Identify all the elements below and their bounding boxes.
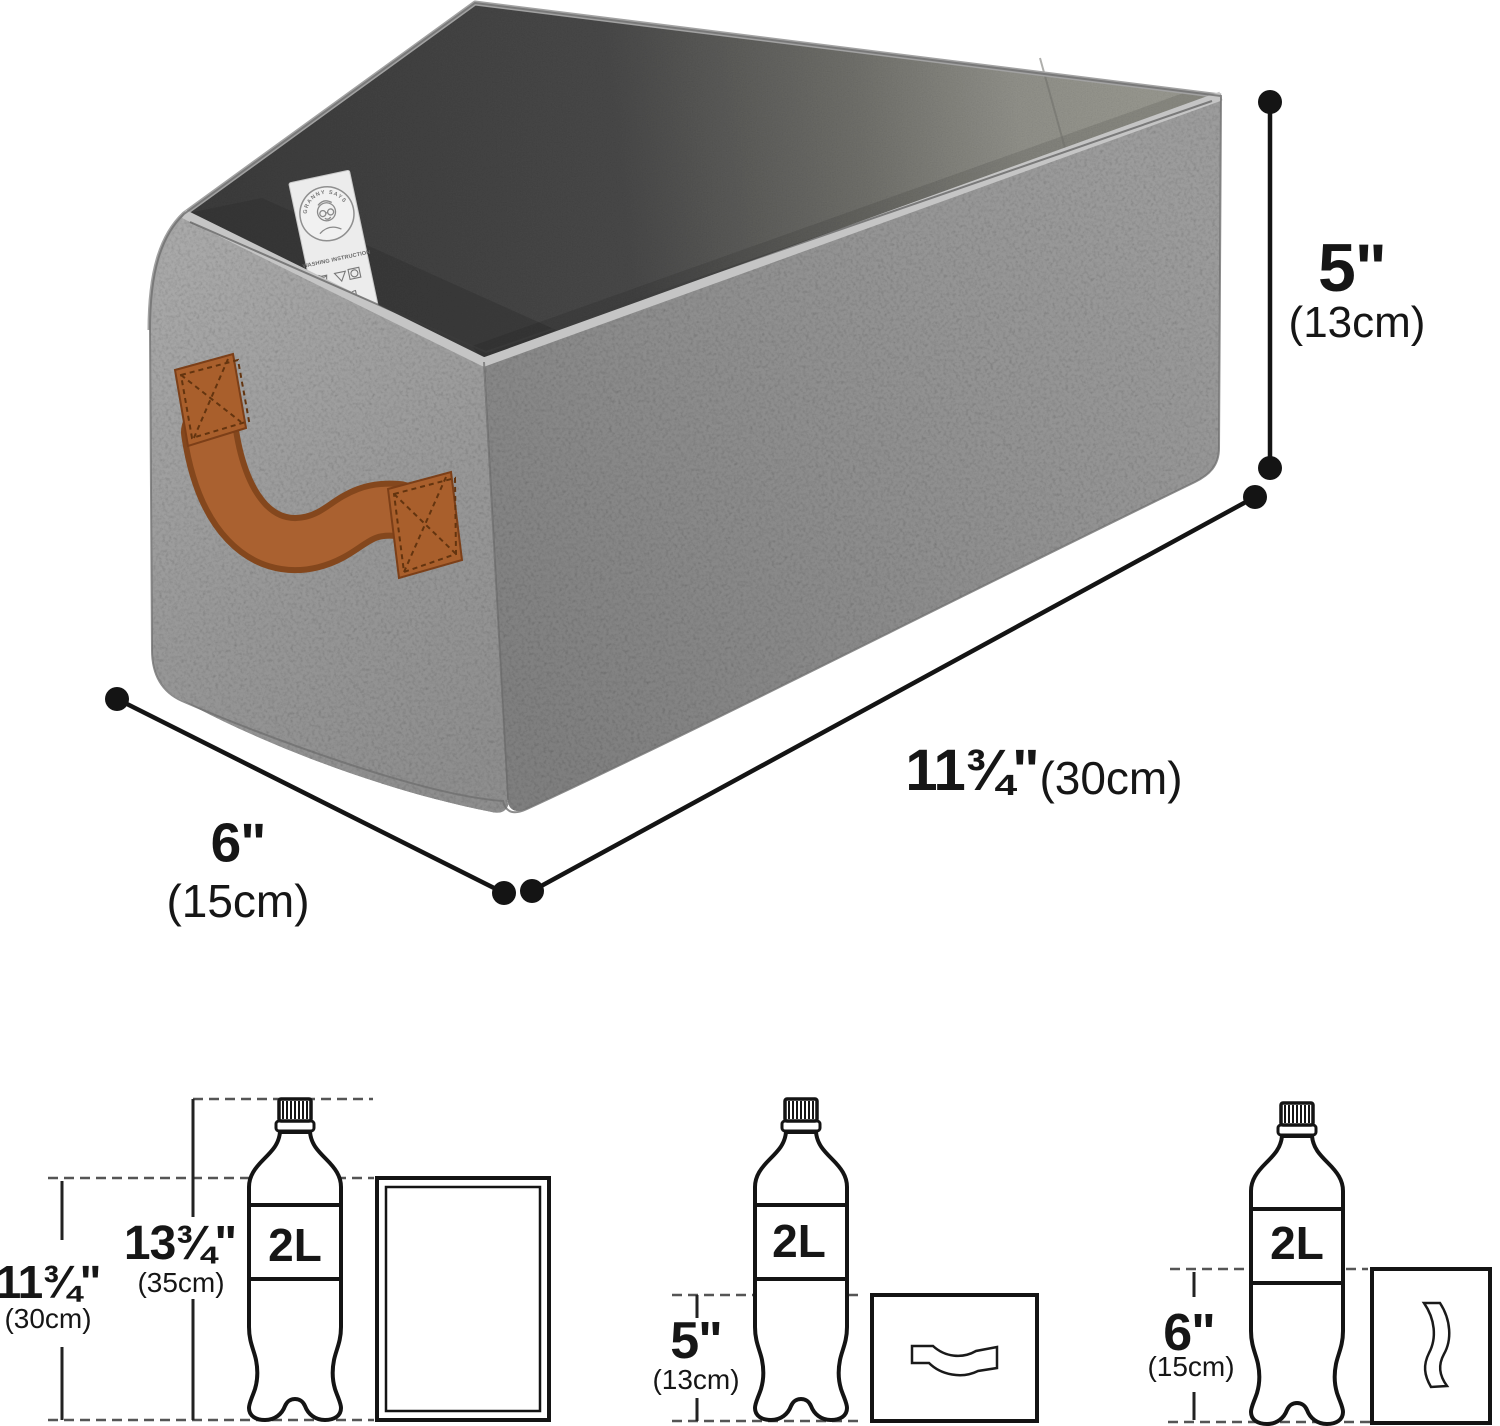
folded-panel-height-cm: (30cm) xyxy=(4,1305,91,1333)
bottle-height-inches: 13¾" xyxy=(124,1220,236,1268)
bottle-volume-label: 2L xyxy=(772,1218,826,1264)
folded-flat-height-inches: 5" xyxy=(670,1315,722,1367)
product-dimension-image: GRANNY SAYS WASHING INSTRUCTION xyxy=(0,0,1500,1426)
folded-flat-height-cm: (13cm) xyxy=(652,1366,739,1394)
folded-panel xyxy=(377,1178,549,1420)
bottle-volume-label: 2L xyxy=(268,1222,322,1268)
width-dimension-inches: 6" xyxy=(211,816,266,871)
width-dimension-cm: (15cm) xyxy=(166,878,309,924)
length-dimension-inches: 11¾" xyxy=(905,742,1038,800)
height-dimension-cm: (13cm) xyxy=(1289,301,1426,345)
height-dimension-inches: 5" xyxy=(1318,234,1386,302)
folded-panel-height-inches: 11¾" xyxy=(0,1259,100,1305)
diagram-canvas: GRANNY SAYS WASHING INSTRUCTION xyxy=(0,0,1500,1426)
folded-side-height-cm: (15cm) xyxy=(1147,1353,1234,1381)
storage-bin-illustration: GRANNY SAYS WASHING INSTRUCTION xyxy=(150,3,1221,813)
length-dimension-cm: (30cm) xyxy=(1039,755,1182,801)
bottle-volume-label: 2L xyxy=(1270,1220,1324,1266)
bottle-height-cm: (35cm) xyxy=(137,1269,224,1297)
